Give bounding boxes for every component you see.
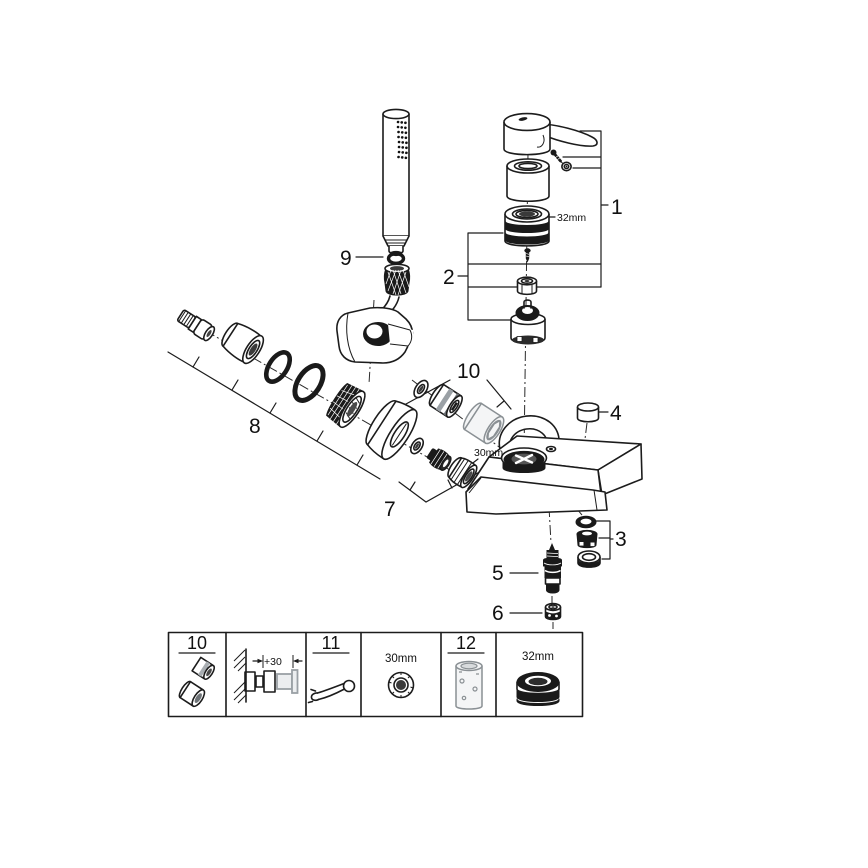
callout-2: 2	[443, 266, 455, 289]
cap-3b	[577, 530, 597, 547]
legend-dim-30mm: 30mm	[385, 653, 417, 665]
s-union	[217, 319, 267, 367]
cap-sleeve	[507, 159, 549, 201]
ring-3c	[578, 551, 600, 567]
s-union-nipple	[176, 308, 217, 343]
callout-10: 10	[457, 360, 480, 383]
o-ring-large-1	[261, 348, 294, 385]
ring-32mm-icon	[517, 673, 559, 706]
seal-ring-3a	[576, 516, 596, 528]
diagram-canvas: 1 2 3 4 5 6 7 8 9 10 32mm 30mm 10	[0, 0, 868, 868]
exploded-parts-diagram: 1 2 3 4 5 6 7 8 9 10 32mm 30mm 10	[0, 0, 868, 868]
nut-30mm-icon	[389, 673, 414, 698]
screw-plug	[578, 403, 599, 422]
callout-4: 4	[610, 402, 622, 425]
legend-cell-11-label: 11	[322, 633, 341, 653]
lever-handle	[504, 114, 597, 155]
shower-holder	[337, 308, 413, 363]
legend-cell-ring-32mm: 32mm	[517, 651, 559, 706]
end-knob	[546, 604, 561, 620]
legend-cell-nut-30mm: 30mm	[385, 653, 417, 698]
ring-nut-32mm	[505, 206, 549, 246]
handle-screw	[551, 150, 561, 162]
wrench-icon	[309, 681, 355, 703]
legend-cell-12-label: 12	[456, 633, 476, 653]
dim-32mm: 32mm	[557, 212, 586, 224]
handle-nut	[562, 162, 571, 170]
callout-5: 5	[492, 562, 504, 585]
legend-cell-extension: 12	[448, 633, 484, 709]
legend-dim-plus30: +30	[264, 656, 282, 668]
callout-1: 1	[611, 196, 623, 219]
legend-dim-32mm: 32mm	[522, 651, 554, 663]
legend-cell-10-label: 10	[187, 633, 207, 653]
dim-30mm: 30mm	[474, 447, 503, 459]
hose-connector-nut	[384, 264, 409, 295]
check-valve	[427, 382, 465, 419]
legend-cell-install-depth: +30	[234, 649, 302, 703]
cartridge-nut	[518, 277, 537, 294]
union-nut	[324, 381, 370, 431]
cartridge	[511, 300, 545, 344]
callout-8: 8	[249, 415, 261, 438]
cartridge-seat-collar	[502, 448, 547, 473]
callout-9: 9	[340, 247, 352, 270]
callout-6: 6	[492, 602, 504, 625]
shower-o-ring	[389, 254, 404, 264]
body-screw-hole	[547, 447, 556, 452]
hand-shower	[383, 109, 409, 255]
extension-sleeve-icon	[456, 662, 482, 710]
aerator-washer	[408, 436, 426, 456]
diverter-cartridge	[544, 543, 562, 593]
callout-7: 7	[384, 498, 396, 521]
callout-3: 3	[615, 528, 627, 551]
cartridge-screw	[524, 248, 530, 262]
o-ring-large-2	[289, 361, 329, 406]
legend-cell-check-valves: 10	[177, 633, 216, 708]
legend-table: 10	[169, 633, 583, 717]
legend-cell-wrench: 11	[309, 633, 355, 703]
